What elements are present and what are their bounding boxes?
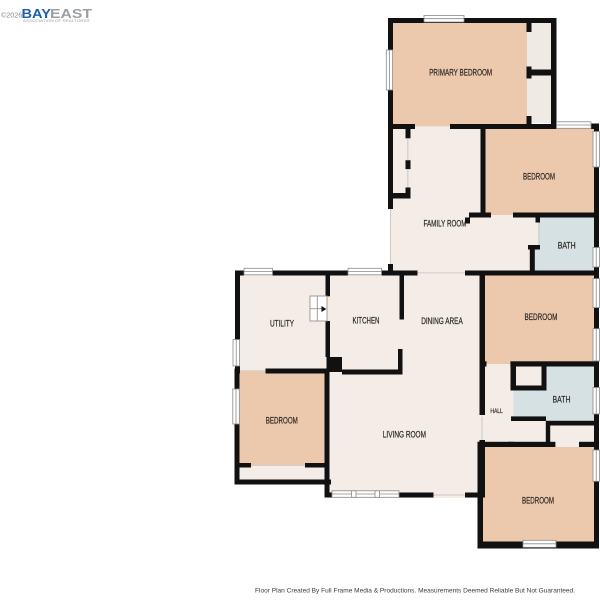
svg-text:BEDROOM: BEDROOM	[522, 496, 554, 507]
svg-text:PRIMARY BEDROOM: PRIMARY BEDROOM	[429, 67, 492, 78]
svg-text:BEDROOM: BEDROOM	[523, 171, 555, 182]
svg-text:©2026: ©2026	[1, 11, 22, 20]
svg-text:DINING AREA: DINING AREA	[421, 316, 463, 327]
svg-text:BATH: BATH	[558, 241, 576, 252]
svg-text:FAMILY ROOM: FAMILY ROOM	[424, 219, 467, 230]
svg-text:ASSOCIATION OF REALTORS®: ASSOCIATION OF REALTORS®	[23, 18, 90, 23]
svg-text:LIVING ROOM: LIVING ROOM	[383, 429, 426, 440]
svg-text:HALL: HALL	[490, 408, 503, 415]
svg-text:UTILITY: UTILITY	[270, 319, 294, 330]
svg-text:BEDROOM: BEDROOM	[266, 416, 298, 427]
svg-text:KITCHEN: KITCHEN	[353, 316, 380, 327]
svg-text:BEDROOM: BEDROOM	[525, 312, 558, 323]
svg-text:Floor Plan Created By Full Fra: Floor Plan Created By Full Frame Media &…	[255, 588, 575, 595]
svg-text:BATH: BATH	[553, 394, 571, 405]
